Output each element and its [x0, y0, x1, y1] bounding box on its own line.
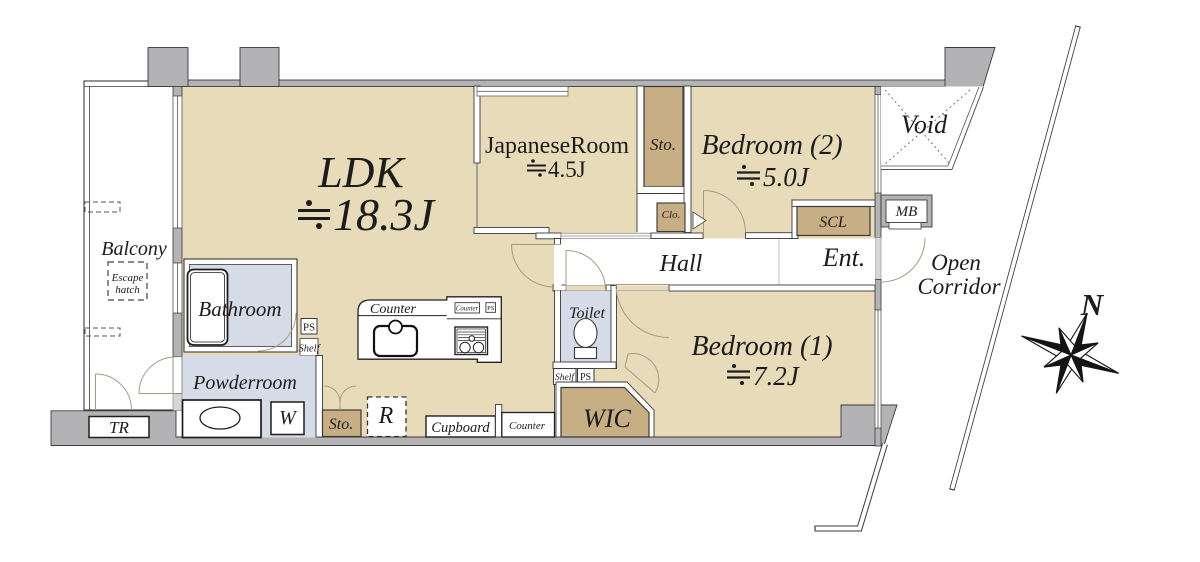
- svg-text:Ent.: Ent.: [822, 243, 866, 272]
- svg-text:TR: TR: [109, 418, 129, 437]
- svg-text:Balcony: Balcony: [101, 238, 167, 260]
- svg-text:R: R: [378, 403, 394, 429]
- svg-text:18.3J: 18.3J: [333, 189, 437, 240]
- svg-text:Counter: Counter: [370, 302, 416, 317]
- svg-text:MB: MB: [895, 204, 918, 220]
- svg-text:Bedroom (1): Bedroom (1): [691, 331, 832, 362]
- svg-text:Bedroom (2): Bedroom (2): [701, 130, 842, 161]
- svg-text:Void: Void: [901, 110, 948, 139]
- svg-text:N: N: [1080, 287, 1105, 322]
- svg-text:Corridor: Corridor: [917, 274, 1001, 299]
- svg-text:Sto.: Sto.: [650, 135, 676, 154]
- svg-text:W: W: [279, 407, 298, 429]
- svg-text:Shelf: Shelf: [299, 344, 322, 355]
- svg-text:Counter: Counter: [509, 420, 546, 432]
- svg-text:PS: PS: [487, 305, 495, 312]
- svg-text:Powderroom: Powderroom: [192, 372, 297, 394]
- svg-text:5.0J: 5.0J: [763, 162, 811, 192]
- svg-text:hatch: hatch: [115, 284, 140, 296]
- svg-text:Hall: Hall: [659, 251, 703, 277]
- svg-text:Counter: Counter: [456, 306, 479, 313]
- svg-text:4.5J: 4.5J: [548, 157, 586, 182]
- svg-text:Toilet: Toilet: [569, 305, 605, 322]
- svg-text:Sto.: Sto.: [329, 416, 353, 433]
- svg-text:WIC: WIC: [583, 404, 631, 433]
- svg-text:PS: PS: [303, 322, 315, 334]
- svg-text:Clo.: Clo.: [662, 209, 681, 221]
- svg-text:7.2J: 7.2J: [753, 361, 801, 391]
- svg-text:SCL: SCL: [819, 214, 847, 231]
- svg-text:Cupboard: Cupboard: [431, 420, 490, 436]
- svg-text:Escape: Escape: [111, 272, 144, 284]
- svg-text:Shelf: Shelf: [555, 372, 575, 383]
- svg-text:JapaneseRoom: JapaneseRoom: [485, 133, 629, 159]
- svg-text:Bathroom: Bathroom: [198, 297, 281, 321]
- svg-text:Open: Open: [931, 250, 981, 275]
- svg-text:PS: PS: [580, 372, 591, 383]
